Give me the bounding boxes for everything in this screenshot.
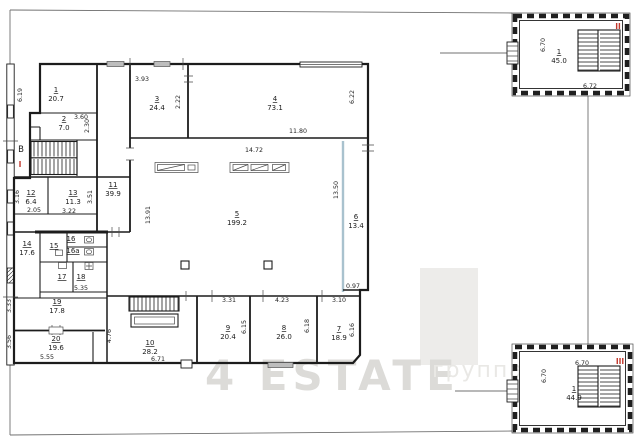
dim-bldg2-height: 6.70 — [540, 38, 547, 52]
dim-room19-height: 3.33 — [6, 299, 13, 313]
west-window-2 — [8, 150, 14, 163]
dim-room13-height: 3.51 — [87, 190, 94, 204]
dim-room3-width: 3.93 — [135, 76, 149, 83]
room-5-area: 199.2 — [227, 219, 247, 227]
room-7-number: 7 — [337, 325, 341, 333]
room-4-number: 4 — [273, 95, 278, 103]
building-iii-room-area: 44.9 — [566, 394, 582, 402]
room-18-number: 18 — [77, 273, 86, 281]
building-ii-room-area: 45.0 — [551, 57, 567, 65]
room-6-number: 6 — [354, 213, 359, 221]
room-19-number: 19 — [53, 298, 62, 306]
room-3-number: 3 — [155, 95, 159, 103]
room-2-area: 7.0 — [58, 124, 69, 132]
room-1-number: 1 — [54, 86, 58, 94]
dim-bldg3-height: 6.70 — [541, 369, 548, 383]
room-14-number: 14 — [23, 240, 32, 248]
room-14-area: 17.6 — [19, 249, 35, 257]
dim-room4-width: 11.80 — [289, 128, 307, 135]
dim-block15-width: 5.35 — [74, 285, 88, 292]
dim-hall-width: 14.72 — [245, 147, 263, 154]
room-3-area: 24.4 — [149, 104, 165, 112]
dim-room2-height: 2.30 — [84, 119, 91, 133]
dim-room9-width: 3.31 — [222, 297, 236, 304]
west-wall-hatch-block — [7, 268, 13, 283]
room-8-number: 8 — [282, 324, 286, 332]
room-9-area: 20.4 — [220, 333, 236, 341]
dim-room10-width: 6.71 — [151, 356, 165, 363]
dim-room10-height: 4.76 — [106, 329, 113, 343]
dim-room3-height: 2.22 — [175, 95, 182, 109]
dim-room6-bottom-width: 0.97 — [346, 283, 360, 290]
room-2-number: 2 — [62, 115, 66, 123]
west-window-1 — [8, 105, 14, 118]
room-15-number: 15 — [50, 242, 59, 250]
room-7-area: 18.9 — [331, 334, 347, 342]
dim-bldg3-width: 6.70 — [575, 360, 589, 367]
section-label-iii: III — [616, 357, 625, 366]
dim-bldg2-width: 6.72 — [583, 83, 597, 90]
dim-hall-height-left: 13.91 — [145, 206, 152, 224]
room-16-number: 16 — [67, 235, 76, 243]
dim-room8-width: 4.23 — [275, 297, 289, 304]
building-iii-room-number: 1 — [572, 385, 576, 393]
stairs-main — [31, 140, 77, 176]
room-12-area: 6.4 — [25, 198, 37, 206]
room-19-area: 17.8 — [49, 307, 65, 315]
building-iii — [507, 344, 633, 433]
room-4-area: 73.1 — [267, 104, 283, 112]
dim-room20-height: 3.56 — [6, 335, 13, 349]
watermark-suffix: группа — [432, 358, 525, 383]
stairwell-letter: В — [18, 145, 24, 155]
room-20-number: 20 — [52, 335, 61, 343]
room-10-number: 10 — [146, 339, 155, 347]
dim-hall-height-right: 13.50 — [333, 181, 340, 199]
dim-room20-width: 5.55 — [40, 354, 54, 361]
dim-room4-height: 6.22 — [349, 90, 356, 104]
west-window-3 — [8, 190, 14, 203]
dim-room7-height: 6.16 — [349, 323, 356, 337]
floor-plan-page: 4 ESTATE группа — [0, 0, 640, 441]
room-13-number: 13 — [69, 189, 78, 197]
room-5-number: 5 — [235, 210, 239, 218]
room-13-area: 11.3 — [65, 198, 81, 206]
dim-room7-width: 3.10 — [332, 297, 346, 304]
room-17-number: 17 — [58, 273, 67, 281]
room-8-area: 26.0 — [276, 333, 292, 341]
entry-window-2 — [154, 62, 170, 67]
building-ii — [507, 13, 630, 96]
dim-room1-height: 6.19 — [17, 88, 24, 102]
room-16a-number: 16а — [66, 247, 79, 255]
entry-window-1 — [107, 62, 124, 67]
section-label-i: I — [19, 160, 22, 169]
floor-plan-drawing: 4 ESTATE группа — [0, 0, 640, 441]
room-6-area: 13.4 — [348, 222, 364, 230]
dim-room8-height: 6.18 — [304, 319, 311, 333]
room-9-number: 9 — [226, 324, 230, 332]
building-ii-room-number: 1 — [557, 48, 561, 56]
room-11-number: 11 — [109, 181, 118, 189]
dim-room12-height: 3.16 — [14, 190, 21, 204]
dim-room9-height: 6.15 — [241, 320, 248, 334]
dim-room13-width: 3.22 — [62, 208, 76, 215]
room-12-number: 12 — [27, 189, 36, 197]
west-window-4 — [8, 222, 14, 235]
room-1-area: 20.7 — [48, 95, 64, 103]
room-20-area: 19.6 — [48, 344, 64, 352]
dim-room12-width: 2.05 — [27, 207, 41, 214]
room-10-area: 28.2 — [142, 348, 158, 356]
watermark-text: 4 ESTATE — [205, 351, 460, 400]
section-label-ii: II — [615, 22, 621, 31]
room-11-area: 39.9 — [105, 190, 121, 198]
